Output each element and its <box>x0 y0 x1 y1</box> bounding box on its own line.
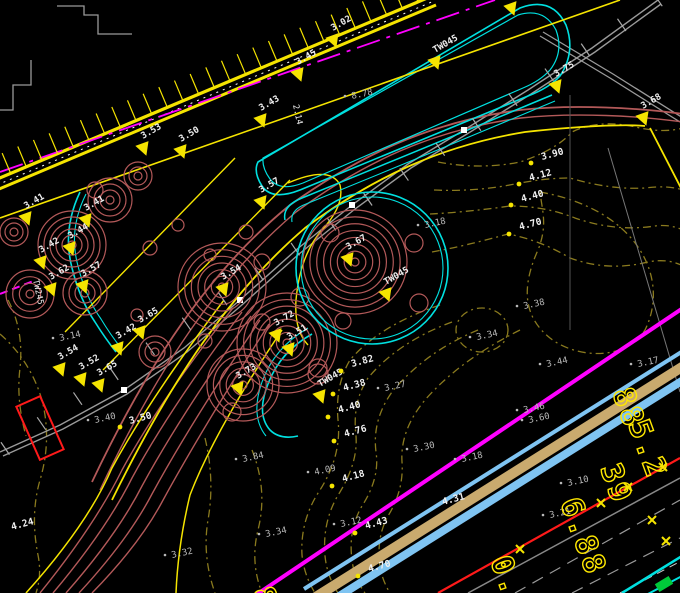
spot-dot <box>469 336 472 339</box>
cad-drawing[interactable]: 3.453.43TW0453.483.753.683.413.413.443.4… <box>0 0 680 593</box>
spot-dot <box>307 471 310 474</box>
contour-dot <box>507 232 512 237</box>
contour-dot <box>517 182 522 187</box>
spot-dot <box>52 337 55 340</box>
spot-dot <box>516 305 519 308</box>
contour-dot <box>326 415 331 420</box>
spot-dot <box>377 387 380 390</box>
rail-node <box>349 202 355 208</box>
cad-viewport[interactable]: 3.453.43TW0453.483.753.683.413.413.443.4… <box>0 0 680 593</box>
spot-dot <box>542 514 545 517</box>
spot-dot <box>333 523 336 526</box>
spot-dot <box>87 419 90 422</box>
contour-dot <box>118 425 123 430</box>
spot-dot <box>516 409 519 412</box>
spot-dot <box>417 224 420 227</box>
contour-dot <box>356 574 361 579</box>
contour-dot <box>353 531 358 536</box>
spot-dot <box>454 458 457 461</box>
spot-dot <box>406 448 409 451</box>
contour-dot <box>332 439 337 444</box>
contour-dot <box>339 369 344 374</box>
spot-dot <box>258 533 261 536</box>
spot-dot <box>560 482 563 485</box>
contour-dot <box>330 484 335 489</box>
spot-dot <box>235 458 238 461</box>
rail-node <box>121 387 127 393</box>
spot-dot <box>344 95 347 98</box>
spot-dot <box>164 554 167 557</box>
spot-dot <box>521 419 524 422</box>
rail-node <box>461 127 467 133</box>
contour-dot <box>331 392 336 397</box>
spot-dot <box>630 363 633 366</box>
contour-dot <box>509 203 514 208</box>
contour-dot <box>529 161 534 166</box>
spot-dot <box>539 363 542 366</box>
